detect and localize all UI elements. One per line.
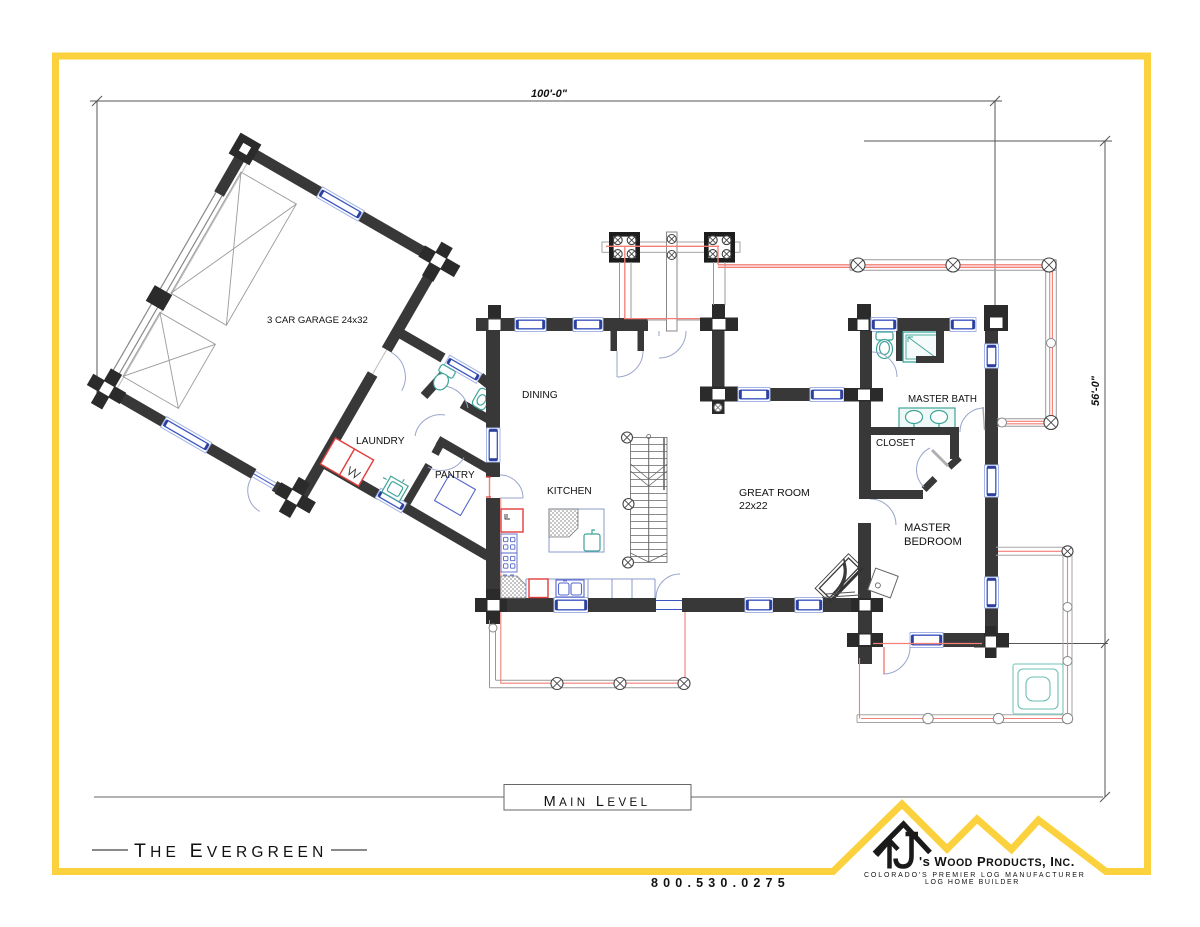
- svg-text:100'-0": 100'-0": [531, 88, 568, 100]
- svg-text:56'-0": 56'-0": [1090, 375, 1102, 406]
- svg-text:COLORADO'S PREMIER LOG MANUFAC: COLORADO'S PREMIER LOG MANUFACTURER: [864, 872, 1086, 879]
- svg-text:LOG HOME BUILDER: LOG HOME BUILDER: [925, 879, 1020, 886]
- svg-text:BEDROOM: BEDROOM: [904, 536, 962, 548]
- svg-text:MASTER: MASTER: [904, 522, 951, 534]
- svg-text:DINING: DINING: [522, 390, 558, 401]
- svg-text:LAUNDRY: LAUNDRY: [356, 436, 405, 447]
- svg-text:3 CAR GARAGE 24x32: 3 CAR GARAGE 24x32: [267, 315, 368, 326]
- svg-text:GREAT ROOM: GREAT ROOM: [739, 487, 810, 499]
- svg-text:THE EVERGREEN: THE EVERGREEN: [134, 840, 327, 862]
- svg-text:800.530.0275: 800.530.0275: [651, 876, 790, 890]
- svg-text:KITCHEN: KITCHEN: [547, 486, 592, 497]
- svg-text:22x22: 22x22: [739, 500, 768, 512]
- svg-text:PANTRY: PANTRY: [435, 470, 475, 481]
- svg-text:'s WOOD PRODUCTS, INC.: 's WOOD PRODUCTS, INC.: [919, 854, 1075, 869]
- svg-text:MAIN LEVEL: MAIN LEVEL: [544, 794, 651, 810]
- svg-text:CLOSET: CLOSET: [876, 438, 915, 449]
- svg-text:MASTER BATH: MASTER BATH: [908, 394, 977, 405]
